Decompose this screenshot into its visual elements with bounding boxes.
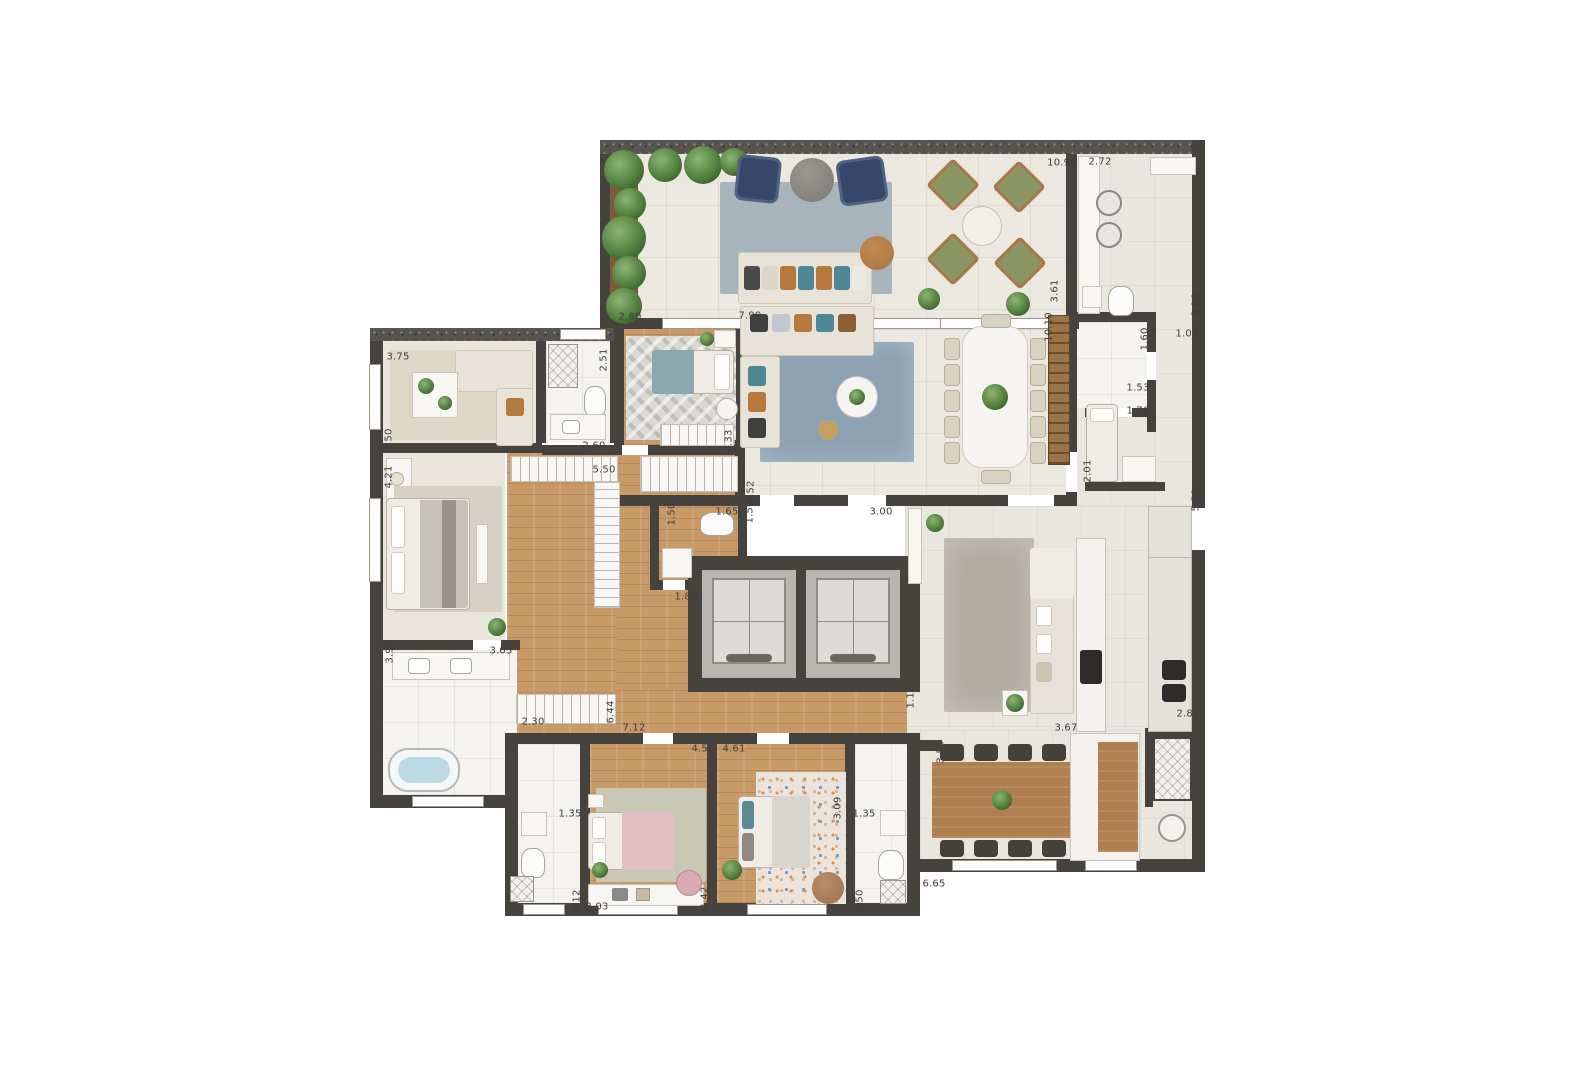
pillow bbox=[1090, 408, 1114, 422]
dimension-label: 7.99 bbox=[738, 311, 761, 322]
dimension-label: 2.50 bbox=[855, 889, 866, 912]
pillow bbox=[742, 833, 754, 861]
dimension-label: 3.61 bbox=[1050, 279, 1061, 302]
wall-segment bbox=[536, 341, 546, 443]
desk-item bbox=[636, 888, 650, 901]
blanket bbox=[652, 350, 694, 394]
armchair-navy bbox=[835, 155, 889, 207]
plant bbox=[1006, 694, 1024, 712]
cushion bbox=[816, 314, 834, 332]
chair-black bbox=[974, 840, 998, 857]
sink bbox=[1082, 286, 1102, 308]
wall-segment bbox=[845, 744, 855, 916]
toilet bbox=[521, 848, 545, 878]
bed-runner bbox=[442, 500, 456, 608]
plant bbox=[926, 514, 944, 532]
sink bbox=[562, 420, 580, 434]
pillow bbox=[592, 842, 606, 864]
sofa-chaise bbox=[1030, 548, 1074, 598]
plant bbox=[612, 256, 646, 290]
dimension-label: 4.61 bbox=[722, 744, 745, 755]
cushion bbox=[772, 314, 790, 332]
den-sofa bbox=[496, 388, 533, 446]
plant bbox=[602, 216, 646, 260]
dimension-label: 3.00 bbox=[869, 507, 892, 518]
plant bbox=[982, 384, 1008, 410]
plant bbox=[700, 332, 714, 346]
cooktop bbox=[1080, 650, 1102, 684]
bench bbox=[476, 524, 488, 584]
toilet bbox=[878, 850, 904, 880]
wall-segment bbox=[1145, 737, 1153, 807]
dimension-label: 2.51 bbox=[599, 348, 610, 371]
wardrobe bbox=[640, 456, 738, 492]
plant bbox=[1006, 292, 1030, 316]
dimension-label: 1.65 bbox=[715, 507, 738, 518]
dimension-label: 5.53 bbox=[1191, 488, 1202, 511]
chair-black bbox=[940, 840, 964, 857]
dimension-label: 1.70 bbox=[1126, 406, 1149, 417]
pillow bbox=[391, 506, 405, 548]
wall-segment bbox=[1085, 482, 1165, 491]
dining-chair bbox=[981, 314, 1011, 328]
elevator-door bbox=[830, 654, 876, 662]
elevator-car bbox=[816, 578, 890, 664]
plant bbox=[684, 146, 722, 184]
wall-segment bbox=[610, 341, 620, 443]
family-rug bbox=[944, 538, 1034, 712]
cushion bbox=[834, 266, 850, 290]
kitchen-sink bbox=[1162, 684, 1186, 702]
terrace-table bbox=[962, 206, 1002, 246]
window bbox=[1085, 860, 1137, 871]
plant bbox=[614, 188, 646, 220]
coffee-table bbox=[412, 372, 458, 418]
vanity bbox=[521, 812, 547, 836]
pillow bbox=[714, 354, 730, 390]
side-table bbox=[818, 420, 838, 440]
door-opening bbox=[622, 445, 648, 455]
dimension-label: 3.67 bbox=[1054, 723, 1077, 734]
dimension-label: 3.03 bbox=[489, 646, 512, 657]
plant bbox=[722, 860, 742, 880]
dimension-label: 1.60 bbox=[1140, 327, 1151, 350]
dimension-label: 4.42 bbox=[700, 886, 711, 909]
den-sofa bbox=[455, 350, 533, 392]
plant bbox=[992, 790, 1012, 810]
cushion bbox=[852, 266, 866, 290]
dining-chair bbox=[944, 338, 960, 360]
window bbox=[369, 364, 381, 430]
dining-chair bbox=[1030, 416, 1046, 438]
nightstand bbox=[588, 794, 604, 808]
dimension-label: 4.21 bbox=[384, 465, 395, 488]
chair-black bbox=[1008, 744, 1032, 761]
blanket bbox=[622, 812, 674, 870]
bathtub-water bbox=[398, 757, 450, 783]
door-opening bbox=[848, 495, 886, 506]
floor-plan: 10.962.723.752.504.212.512.602.807.993.3… bbox=[0, 0, 1584, 1080]
window bbox=[523, 904, 565, 915]
chair-black bbox=[1008, 840, 1032, 857]
dimension-label: 4.12 bbox=[572, 889, 583, 912]
dimension-label: 7.12 bbox=[622, 723, 645, 734]
dimension-label: 10.96 bbox=[1047, 158, 1077, 169]
dimension-label: 1.50 bbox=[745, 500, 756, 523]
dimension-label: 10.10 bbox=[1044, 312, 1055, 342]
cushion bbox=[838, 314, 856, 332]
dimension-label: 3.09 bbox=[833, 796, 844, 819]
dining-chair bbox=[944, 390, 960, 412]
plant bbox=[648, 148, 682, 182]
window bbox=[369, 498, 381, 582]
entry-door-opening bbox=[1192, 508, 1205, 550]
desk bbox=[714, 330, 736, 348]
side-table bbox=[860, 236, 894, 270]
dimension-label: 1.53 bbox=[1126, 383, 1149, 394]
dining-chair bbox=[1030, 390, 1046, 412]
pillow bbox=[742, 801, 754, 829]
dining-chair bbox=[944, 416, 960, 438]
dining-chair bbox=[1030, 364, 1046, 386]
cushion bbox=[1036, 662, 1052, 682]
door-opening bbox=[643, 733, 673, 744]
armchair-round bbox=[812, 872, 844, 904]
dining-chair bbox=[1030, 442, 1046, 464]
breakfast-bar-top bbox=[1098, 742, 1138, 852]
pillow bbox=[391, 552, 405, 594]
door-opening bbox=[1147, 352, 1156, 380]
cushion bbox=[748, 418, 766, 438]
dimension-label: 1.05 bbox=[1175, 329, 1198, 340]
dimension-label: 3.03 bbox=[585, 902, 608, 913]
plant bbox=[604, 150, 644, 190]
dimension-label: 2.80 bbox=[618, 312, 641, 323]
desk-chair bbox=[676, 870, 702, 896]
dimension-label: 1.88 bbox=[674, 592, 697, 603]
dimension-label: 3.96 bbox=[1191, 293, 1202, 316]
dimension-label: 6.65 bbox=[922, 879, 945, 890]
dimension-label: 6.44 bbox=[606, 700, 617, 723]
dimension-label: 2.72 bbox=[1088, 157, 1111, 168]
dimension-label: 4.55 bbox=[691, 744, 714, 755]
shower bbox=[510, 876, 534, 902]
wardrobe bbox=[594, 482, 620, 608]
plant bbox=[438, 396, 452, 410]
elevator-car bbox=[712, 578, 786, 664]
door-opening bbox=[757, 733, 789, 744]
dryer bbox=[1096, 222, 1122, 248]
shower bbox=[880, 880, 906, 904]
pillow bbox=[1036, 606, 1052, 626]
window bbox=[412, 796, 484, 807]
cushion bbox=[816, 266, 832, 290]
dimension-label: 2.60 bbox=[582, 441, 605, 452]
window bbox=[952, 860, 1057, 871]
elevator-door bbox=[726, 654, 772, 662]
toilet bbox=[584, 386, 606, 416]
dimension-label: 3.90 bbox=[385, 640, 396, 663]
door-opening bbox=[1008, 495, 1054, 506]
refrigerator bbox=[1148, 506, 1192, 558]
chair-black bbox=[1042, 744, 1066, 761]
chair-black bbox=[974, 744, 998, 761]
blanket bbox=[772, 796, 810, 868]
dining-chair bbox=[944, 364, 960, 386]
shower bbox=[548, 344, 578, 388]
cabinet bbox=[908, 508, 922, 584]
dining-chair bbox=[981, 470, 1011, 484]
plant bbox=[488, 618, 506, 636]
cushion bbox=[780, 266, 796, 290]
dimension-label: 2.30 bbox=[521, 717, 544, 728]
dresser bbox=[1122, 456, 1156, 482]
ac-unit bbox=[1150, 157, 1196, 175]
window bbox=[560, 329, 606, 340]
plant bbox=[418, 378, 434, 394]
wall-segment bbox=[505, 733, 907, 744]
armchair-navy bbox=[734, 154, 783, 204]
side-table bbox=[716, 398, 738, 420]
kitchen-sink bbox=[1162, 660, 1186, 680]
dining-chair bbox=[944, 442, 960, 464]
service-elevator bbox=[1153, 737, 1192, 801]
window bbox=[747, 904, 827, 915]
plant bbox=[849, 389, 865, 405]
wall-segment bbox=[650, 506, 659, 590]
dimension-label: 3.75 bbox=[386, 352, 409, 363]
pillow bbox=[1036, 634, 1052, 654]
kitchen-island bbox=[1076, 538, 1106, 732]
dimension-label: 3.33 bbox=[724, 429, 735, 452]
door-opening bbox=[663, 580, 685, 590]
cushion bbox=[748, 392, 766, 412]
cushion bbox=[748, 366, 766, 386]
pillow bbox=[592, 817, 606, 839]
plant bbox=[592, 862, 608, 878]
vanity bbox=[662, 548, 692, 578]
service-wc-floor bbox=[1075, 322, 1147, 408]
water-heater bbox=[1158, 814, 1186, 842]
laptop bbox=[612, 888, 628, 901]
sink bbox=[408, 658, 430, 674]
vanity bbox=[880, 810, 906, 836]
wall-segment bbox=[907, 733, 920, 916]
dimension-label: 1.35 bbox=[852, 809, 875, 820]
dimension-label: 3.55 bbox=[936, 740, 947, 763]
door-opening bbox=[760, 495, 794, 506]
dimension-label: 5.50 bbox=[592, 465, 615, 476]
coffee-table bbox=[790, 158, 834, 202]
dimension-label: 1.35 bbox=[558, 809, 581, 820]
dimension-label: 2.85 bbox=[1176, 709, 1199, 720]
toilet bbox=[1108, 286, 1134, 316]
cushion bbox=[794, 314, 812, 332]
cushion bbox=[506, 398, 524, 416]
dimension-label: 1.50 bbox=[667, 502, 678, 525]
cushion bbox=[798, 266, 814, 290]
washer bbox=[1096, 190, 1122, 216]
dimension-label: 1.10 bbox=[906, 685, 917, 708]
chair-black bbox=[1042, 840, 1066, 857]
dimension-label: 2.01 bbox=[1083, 459, 1094, 482]
dimension-label: 2.50 bbox=[384, 428, 395, 451]
plant bbox=[918, 288, 940, 310]
cushion bbox=[744, 266, 760, 290]
sink bbox=[450, 658, 472, 674]
cushion bbox=[762, 266, 778, 290]
